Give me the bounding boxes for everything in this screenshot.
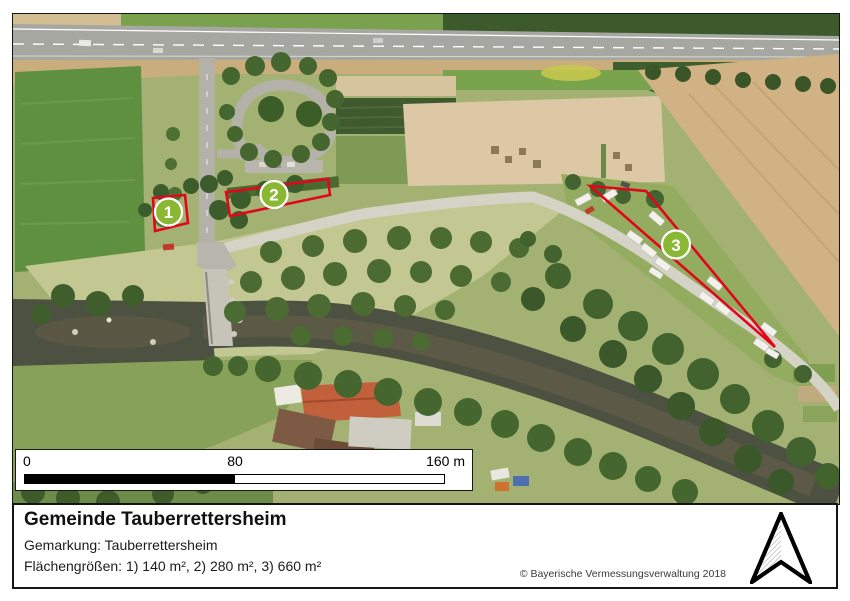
crop-field bbox=[15, 66, 145, 272]
marker-1-label: 1 bbox=[164, 203, 173, 222]
scale-bar-track bbox=[24, 474, 445, 484]
scale-bar-filled-segment bbox=[25, 475, 235, 483]
marker-3-label: 3 bbox=[671, 236, 680, 255]
north-arrow-icon bbox=[750, 512, 812, 584]
map-frame: 1 2 3 0 80 160 m bbox=[12, 13, 840, 505]
area-marker-2: 2 bbox=[261, 181, 288, 208]
areas-line: Flächengrößen: 1) 140 m², 2) 280 m², 3) … bbox=[24, 558, 321, 574]
marker-2-label: 2 bbox=[269, 186, 278, 205]
gemarkung-line: Gemarkung: Tauberrettersheim bbox=[24, 537, 218, 553]
area-marker-3: 3 bbox=[662, 231, 690, 259]
map-layout-page: 1 2 3 0 80 160 m Gemeinde Tauberrettersh… bbox=[0, 0, 850, 601]
scale-bar: 0 80 160 m bbox=[15, 449, 473, 491]
scale-tick-0: 0 bbox=[23, 453, 31, 469]
page-title: Gemeinde Tauberrettersheim bbox=[24, 509, 287, 531]
attribution: © Bayerische Vermessungsverwaltung 2018 bbox=[520, 568, 726, 580]
scale-tick-80: 80 bbox=[227, 453, 243, 469]
red-car bbox=[163, 243, 174, 250]
title-panel: Gemeinde Tauberrettersheim Gemarkung: Ta… bbox=[12, 503, 838, 589]
scale-tick-160: 160 m bbox=[426, 453, 465, 469]
aerial-photo: 1 2 3 bbox=[13, 14, 839, 504]
area-marker-1: 1 bbox=[155, 199, 182, 226]
